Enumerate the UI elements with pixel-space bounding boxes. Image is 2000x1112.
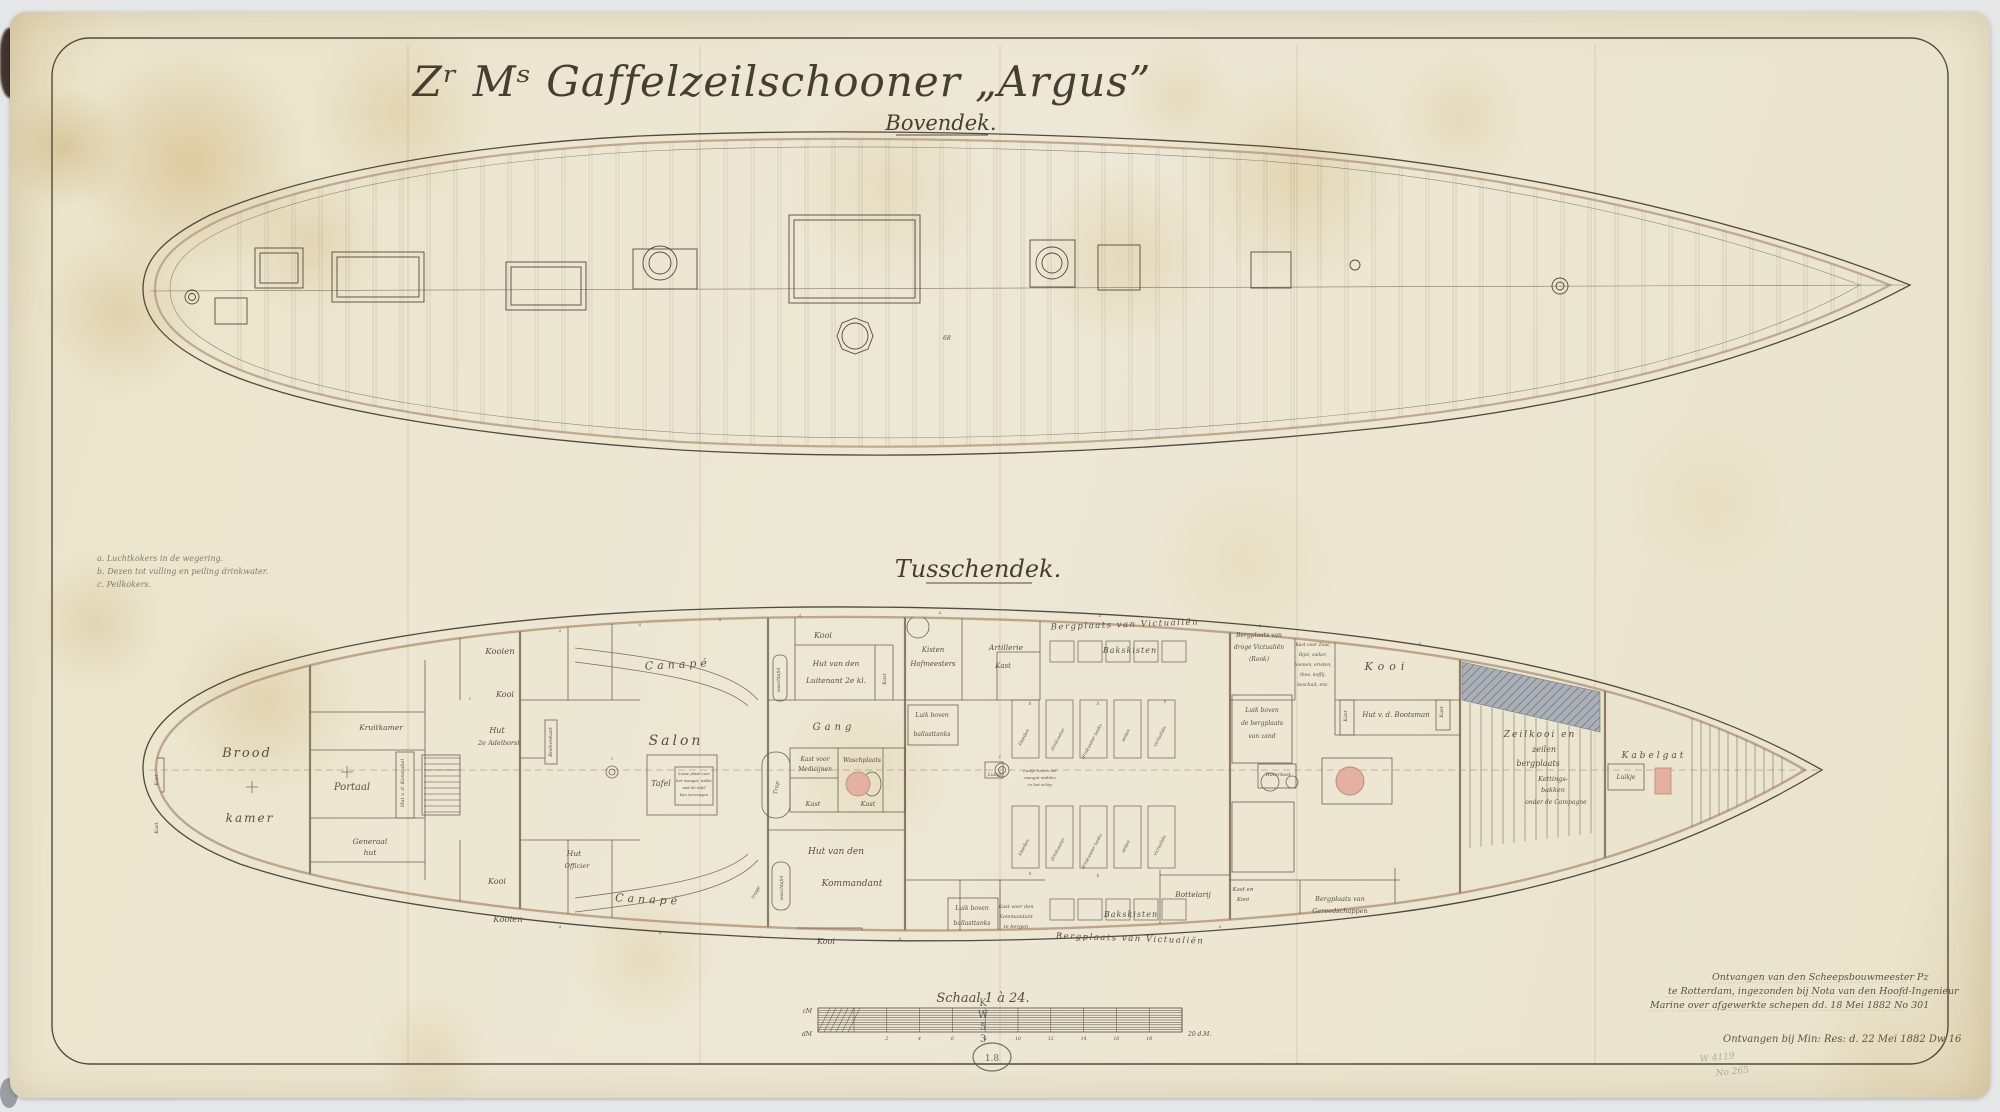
room-label: de bergplaats bbox=[1241, 720, 1283, 727]
legend-mark-letter: a bbox=[559, 629, 562, 634]
room-label: Bergplaats van bbox=[1235, 632, 1282, 639]
room-label: Generaal bbox=[353, 837, 388, 846]
legend-line: a. Luchtkokers in de wegering. bbox=[97, 554, 223, 563]
room-label: Waschplaats bbox=[843, 757, 881, 764]
tweendeck-interior bbox=[150, 598, 1782, 945]
receipt-notes: Ontvangen van den Scheepsbouwmeester Pzt… bbox=[1649, 972, 1962, 1045]
room-label: Kommandant bbox=[821, 879, 883, 889]
room-label: Gang bbox=[813, 722, 856, 733]
room-label: Kast bbox=[994, 662, 1011, 670]
topdeck-rail bbox=[155, 139, 1890, 447]
legend-mark-letter: a bbox=[639, 623, 642, 628]
room-label: victualiën bbox=[1152, 834, 1168, 857]
room-label: mangat midden bbox=[1024, 775, 1056, 780]
scale-bar: Schaal 1 à 24. 24681012141618 cM dM 20 d… bbox=[802, 991, 1211, 1042]
legend-mark-letter: a bbox=[719, 618, 722, 623]
room-label: Kooi bbox=[1364, 660, 1410, 673]
room-label: Canapé bbox=[644, 656, 711, 672]
room-label: Medicijnen bbox=[797, 766, 832, 773]
legend-mark-letter: c bbox=[469, 697, 472, 702]
room-label: beschuit, enz. bbox=[1297, 682, 1329, 688]
room-label: Salon bbox=[649, 733, 704, 749]
tweendeck-room-labels: BroodkamerPortaalKruitkamerGeneraalhutHu… bbox=[154, 617, 1686, 946]
topdeck-waterway bbox=[170, 147, 1860, 438]
topdeck-heading: Bovendek. bbox=[884, 111, 996, 135]
legend-mark-letter: a bbox=[659, 931, 662, 936]
scale-tick-number: 6 bbox=[951, 1036, 954, 1042]
room-label: Bergplaats van bbox=[1314, 895, 1365, 903]
room-label: kleeden bbox=[1017, 838, 1031, 857]
legend-mark-letter: a bbox=[1099, 614, 1102, 619]
room-label: Luitenant 2e kl. bbox=[805, 676, 866, 685]
room-label: Luikje boven het bbox=[1022, 768, 1057, 773]
room-label: Luik boven bbox=[1244, 707, 1279, 714]
room-label: Kabelgat bbox=[1621, 751, 1687, 761]
room-label: onder de Campagne bbox=[1525, 799, 1587, 806]
aft-staircase-treads bbox=[424, 758, 460, 812]
room-label: drinkwater tanks bbox=[1080, 832, 1104, 870]
room-label: Zeilkooi en bbox=[1503, 730, 1577, 740]
room-label: 2e Adelborst bbox=[477, 739, 520, 747]
room-label: zeilen bbox=[1531, 745, 1556, 754]
room-label: Bottelarij bbox=[1174, 890, 1211, 899]
room-label: Hut v. d. Konstabel bbox=[400, 759, 406, 809]
room-label: boonen, erwten, bbox=[1294, 662, 1332, 668]
room-label: Brood bbox=[221, 746, 272, 761]
legend-line: b. Dezen tot vulling en peiling drinkwat… bbox=[97, 567, 268, 576]
room-label: Bakskisten bbox=[1102, 646, 1157, 655]
room-label: drinkwater bbox=[1050, 836, 1068, 862]
room-label: Hut v. d. Bootsman bbox=[1361, 711, 1430, 719]
legend-mark-letter: a bbox=[1219, 925, 1222, 930]
room-label: Kast bbox=[882, 672, 888, 685]
legend-mark-letter: b bbox=[1029, 871, 1032, 877]
room-label: Kruitkamer bbox=[358, 723, 403, 732]
room-label: Kast bbox=[154, 821, 160, 834]
room-label: kamer bbox=[226, 811, 275, 825]
storage-chests bbox=[1050, 641, 1186, 920]
archive-stamp: KW53 1.8 bbox=[973, 998, 1011, 1071]
room-label: Kooien bbox=[492, 915, 523, 925]
legend-mark-letter: c bbox=[611, 757, 614, 762]
room-label: Kast bbox=[154, 773, 160, 786]
room-label: het mangat, welke bbox=[676, 778, 712, 783]
scale-tick-number: 12 bbox=[1048, 1036, 1054, 1042]
room-label: bakken bbox=[1541, 786, 1565, 794]
legend: a. Luchtkokers in de wegering.b. Dezen t… bbox=[97, 554, 268, 589]
room-label: Luik boven bbox=[954, 905, 989, 912]
room-label: Kooi bbox=[816, 937, 835, 946]
scale-tick-number: 4 bbox=[917, 1036, 921, 1042]
receipt-note-line: te Rotterdam, ingezonden bij Nota van de… bbox=[1668, 986, 1960, 997]
room-label: Bergplaats van Victualiën bbox=[1055, 931, 1205, 946]
scale-unit-cm: cM bbox=[802, 1008, 812, 1015]
room-label: waschtafel bbox=[776, 667, 782, 692]
pencil-scribble: No 265 bbox=[1714, 1066, 1749, 1080]
topdeck-hatches bbox=[185, 215, 1568, 354]
pencil-scribbles: W 4119No 265 bbox=[1699, 1051, 1749, 1079]
washbasin-fixture bbox=[846, 772, 870, 796]
topdeck-number: 68 bbox=[943, 335, 951, 342]
receipt-note-line: Marine over afgewerkte schepen dd. 18 Me… bbox=[1649, 1000, 1929, 1011]
stamp-circle-number: 1.8 bbox=[985, 1054, 1000, 1064]
topdeck-labels: 68 bbox=[943, 335, 951, 342]
ship-plan-drawing: Zʳ Mˢ Gaffelzeilschooner „Argus” Bovende… bbox=[0, 0, 2000, 1112]
room-label: Kettings- bbox=[1537, 775, 1568, 783]
room-label: Kast bbox=[1439, 705, 1445, 718]
receipt-note-line: Ontvangen van den Scheepsbouwmeester Pz bbox=[1712, 972, 1929, 983]
room-label: met de tafel bbox=[682, 785, 706, 790]
room-label: waschtafel bbox=[779, 875, 785, 900]
room-label: bergplaats bbox=[1516, 759, 1559, 768]
room-label: Tafel bbox=[651, 779, 671, 788]
scale-right-label: 20 d.M. bbox=[1187, 1031, 1211, 1038]
stamp-letter: 5 bbox=[980, 1022, 986, 1033]
room-label: victualiën bbox=[1152, 725, 1168, 748]
room-label: trapje bbox=[750, 885, 762, 900]
tweendeck-plan: BroodkamerPortaalKruitkamerGeneraalhutHu… bbox=[143, 598, 1822, 947]
room-label: drinkwater tanks bbox=[1080, 722, 1104, 760]
plan-title: Zʳ Mˢ Gaffelzeilschooner „Argus” bbox=[411, 57, 1152, 106]
room-label: van zand bbox=[1248, 733, 1275, 740]
legend-mark-letter: a bbox=[1259, 624, 1262, 629]
pencil-scribble: W 4119 bbox=[1699, 1051, 1735, 1065]
legend-mark-letter: a bbox=[759, 935, 762, 940]
stamp-letter: W bbox=[978, 1010, 989, 1021]
legend-mark-letter: b bbox=[1164, 699, 1167, 705]
room-label: Kast bbox=[1343, 709, 1349, 722]
topdeck-beams bbox=[238, 136, 1861, 456]
legend-mark-letter: b bbox=[1097, 873, 1100, 879]
room-label: te bergen bbox=[1004, 924, 1029, 930]
room-label: Losse plaat over bbox=[677, 771, 710, 776]
room-label: Hut bbox=[488, 726, 505, 735]
scale-tick-number: 2 bbox=[884, 1036, 888, 1042]
legend-mark-letter: a bbox=[899, 937, 902, 942]
room-label: kan vervangen bbox=[680, 792, 709, 797]
bow-fixture bbox=[1655, 768, 1671, 794]
scale-tick-number: 18 bbox=[1146, 1036, 1152, 1042]
legend-mark-letter: a bbox=[559, 925, 562, 930]
room-label: Waterkast bbox=[1265, 772, 1292, 778]
room-label: Kast bbox=[805, 800, 821, 808]
legend-mark-letter: a bbox=[1059, 933, 1062, 938]
legend-mark-letter: a bbox=[799, 614, 802, 619]
room-label: Kast voor Zout, bbox=[1294, 642, 1331, 648]
room-label: drinkwater bbox=[1050, 726, 1068, 752]
room-label: Kooien bbox=[484, 647, 515, 657]
room-label: Luikje bbox=[1616, 774, 1636, 781]
legend-line: c. Peilkokers. bbox=[97, 580, 151, 589]
room-label: ballasttanks bbox=[954, 920, 991, 927]
tweendeck-heading: Tusschendek. bbox=[895, 555, 1061, 583]
room-label: Portaal bbox=[333, 782, 370, 793]
room-label: Kast en bbox=[1232, 887, 1254, 893]
room-label: Hofmeesters bbox=[909, 660, 956, 668]
room-label: Kooi bbox=[813, 631, 832, 640]
legend-mark-letter: a bbox=[1419, 642, 1422, 647]
scanned-ship-plan-sheet: Zʳ Mˢ Gaffelzeilschooner „Argus” Bovende… bbox=[0, 0, 2000, 1112]
legend-mark-letter: b bbox=[1097, 701, 1100, 707]
legend-mark-letter: a bbox=[939, 611, 942, 616]
room-label: Kooi bbox=[1236, 897, 1250, 903]
room-label: Officier bbox=[565, 862, 591, 870]
room-label: Bergplaats van Victualiën bbox=[1050, 617, 1200, 632]
room-label: in het schip bbox=[1028, 782, 1052, 787]
room-label: ballasttanks bbox=[914, 731, 951, 738]
room-label: kleeden bbox=[1017, 728, 1031, 747]
stamp-letter: K bbox=[979, 998, 987, 1009]
room-label: Kommandant bbox=[998, 914, 1034, 920]
galley-stove-fixture bbox=[1336, 767, 1364, 795]
room-label: (Rook) bbox=[1249, 656, 1270, 663]
room-label: Trap bbox=[773, 780, 781, 794]
room-label: Luikje bbox=[987, 772, 1002, 778]
legend-mark-letter: b bbox=[1029, 701, 1032, 707]
scale-unit-dm: dM bbox=[802, 1031, 813, 1038]
room-label: Kooi bbox=[487, 877, 506, 886]
room-label: Kast bbox=[860, 800, 876, 808]
room-label: hut bbox=[364, 848, 378, 857]
scale-tick-number: 16 bbox=[1114, 1036, 1120, 1042]
room-label: Hut van den bbox=[807, 847, 864, 857]
room-label: zeilen bbox=[1120, 839, 1132, 855]
scale-bar-numbers: 24681012141618 bbox=[884, 1036, 1152, 1042]
scale-tick-number: 14 bbox=[1081, 1036, 1087, 1042]
room-label: Kast voor den bbox=[997, 904, 1033, 910]
room-label: Bakskisten bbox=[1103, 910, 1158, 919]
receipt-note-line: Ontvangen bij Min: Res: d. 22 Mei 1882 D… bbox=[1723, 1034, 1962, 1045]
room-label: Kooi bbox=[495, 690, 514, 699]
room-label: Hut bbox=[566, 849, 582, 858]
room-label: Luik boven bbox=[914, 712, 949, 719]
room-label: droge Victualiën bbox=[1234, 644, 1284, 651]
room-label: Artillerie bbox=[988, 643, 1024, 652]
legend-mark-letter: c bbox=[999, 755, 1002, 760]
room-label: Kisten bbox=[921, 646, 945, 654]
room-label: Gereedschappen bbox=[1312, 907, 1367, 915]
room-label: Boekenkast bbox=[548, 726, 554, 757]
room-label: Kast voor bbox=[800, 756, 831, 763]
scale-tick-number: 10 bbox=[1015, 1036, 1021, 1042]
room-label: zeilen bbox=[1120, 728, 1132, 744]
room-label: Hut van den bbox=[812, 659, 860, 668]
room-label: thee, koffij, bbox=[1300, 672, 1326, 678]
room-label: Rijst, suiker, bbox=[1298, 652, 1328, 658]
